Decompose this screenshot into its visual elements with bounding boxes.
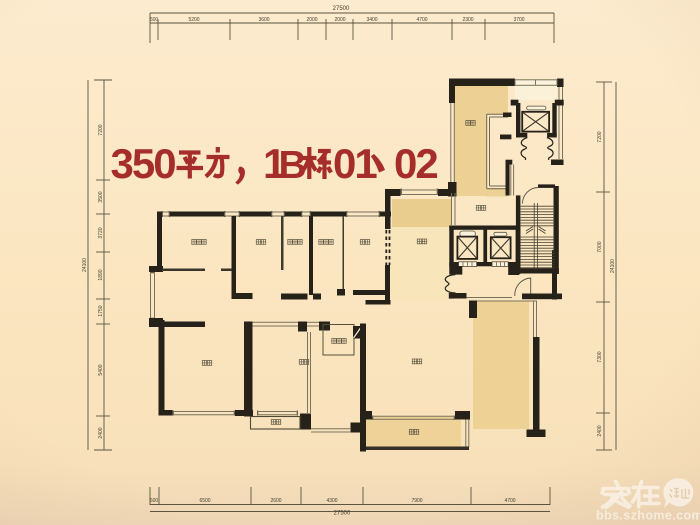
svg-text:7900: 7900: [411, 498, 422, 504]
svg-text:6500: 6500: [199, 498, 210, 504]
svg-text:27500: 27500: [334, 511, 351, 517]
svg-text:1750: 1750: [98, 305, 104, 316]
svg-text:24100: 24100: [610, 259, 616, 273]
svg-text:2000: 2000: [334, 17, 345, 23]
svg-text:01: 01: [333, 140, 377, 187]
svg-text:bbs.szhome.com: bbs.szhome.com: [596, 509, 700, 523]
svg-text:7200: 7200: [597, 131, 603, 142]
svg-text:02: 02: [394, 140, 437, 187]
svg-text:2400: 2400: [98, 427, 104, 438]
svg-text:B: B: [279, 144, 307, 187]
svg-text:24100: 24100: [82, 258, 88, 272]
svg-text:2600: 2600: [270, 498, 281, 504]
svg-text:27500: 27500: [333, 6, 350, 12]
svg-text:350: 350: [111, 140, 176, 187]
svg-text:1890: 1890: [98, 269, 104, 280]
svg-text:2000: 2000: [306, 17, 317, 23]
svg-text:4300: 4300: [326, 498, 337, 504]
svg-text:600: 600: [150, 17, 159, 23]
svg-text:3600: 3600: [258, 17, 269, 23]
svg-text:3720: 3720: [98, 227, 104, 238]
svg-text:7300: 7300: [597, 351, 603, 362]
svg-text:3700: 3700: [513, 17, 524, 23]
svg-text:4700: 4700: [504, 498, 515, 504]
svg-text:4700: 4700: [416, 17, 427, 23]
svg-text:5400: 5400: [98, 364, 104, 375]
svg-text:600: 600: [150, 498, 159, 504]
svg-text:7000: 7000: [597, 241, 603, 252]
svg-text:3500: 3500: [98, 191, 104, 202]
svg-text:2400: 2400: [597, 425, 603, 436]
svg-text:5200: 5200: [188, 17, 199, 23]
svg-text:2300: 2300: [462, 17, 473, 23]
svg-text:7200: 7200: [98, 124, 104, 135]
svg-text:3400: 3400: [366, 17, 377, 23]
